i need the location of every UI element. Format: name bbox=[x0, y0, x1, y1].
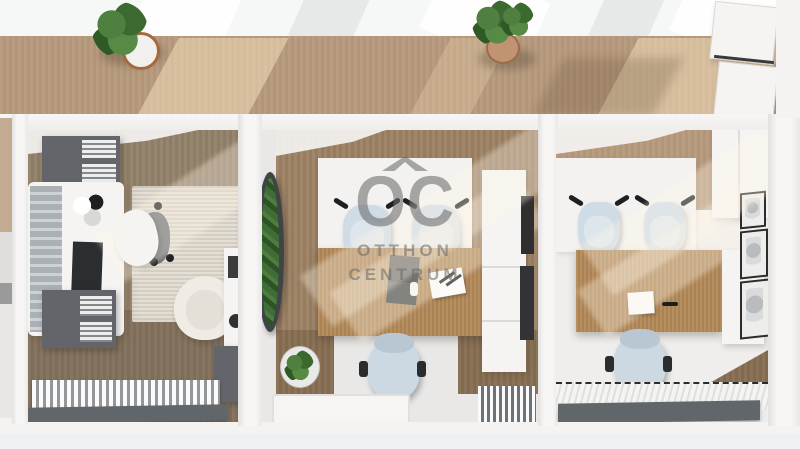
office-floorplan-render: OC OTTHON CENTRUM bbox=[0, 0, 800, 449]
round-potted-plant bbox=[280, 346, 318, 386]
paper-sheet bbox=[627, 291, 654, 315]
shelf-unit-bottom bbox=[42, 290, 116, 348]
wall-frame-3 bbox=[740, 278, 768, 339]
room-right-office bbox=[556, 130, 768, 422]
right-edge-wall bbox=[776, 0, 800, 118]
chair-wheel bbox=[154, 202, 162, 210]
plant-leaves bbox=[284, 350, 314, 382]
plant-leaves bbox=[92, 2, 148, 58]
wall-frame-1 bbox=[740, 191, 766, 230]
armchair-seat bbox=[186, 290, 224, 330]
wall-frame-small bbox=[521, 196, 534, 254]
small-bottle bbox=[410, 282, 418, 296]
planter-greens bbox=[262, 178, 279, 326]
foreground-strip bbox=[0, 434, 800, 449]
room-middle-office bbox=[262, 130, 538, 422]
binders bbox=[80, 322, 112, 342]
guest-chair-2 bbox=[644, 202, 686, 254]
desk-items bbox=[72, 192, 106, 226]
floor-slab-edge bbox=[28, 404, 228, 422]
laptop bbox=[386, 255, 420, 305]
main-desk bbox=[318, 248, 494, 336]
chair-seat bbox=[650, 216, 679, 248]
office-chair-with-throw bbox=[114, 202, 172, 272]
white-floor-mat bbox=[272, 394, 410, 422]
wall-frame-2 bbox=[740, 229, 768, 280]
binders bbox=[80, 296, 112, 316]
potted-plant-left bbox=[92, 2, 158, 66]
outer-left-wall bbox=[12, 114, 28, 424]
frame-art bbox=[745, 197, 760, 222]
outer-right-wall bbox=[768, 114, 800, 426]
wall-frame-small bbox=[520, 266, 534, 340]
guest-chair-1 bbox=[578, 202, 620, 254]
striped-mat bbox=[478, 386, 536, 422]
floor-slab-edge bbox=[558, 400, 760, 422]
binders bbox=[82, 140, 116, 158]
room-left-office bbox=[28, 130, 240, 422]
divider-wall-middle-right bbox=[538, 114, 558, 426]
desk-office-chair bbox=[368, 340, 420, 400]
frame-art bbox=[746, 236, 762, 269]
main-desk bbox=[576, 250, 722, 332]
divider-wall-left-middle bbox=[238, 114, 262, 426]
paper-stack bbox=[428, 267, 466, 299]
chair-seat bbox=[584, 216, 613, 248]
potted-plant-center bbox=[470, 0, 534, 64]
pen bbox=[662, 302, 678, 306]
shelf-unit-top bbox=[42, 136, 120, 186]
frame-art bbox=[746, 288, 763, 329]
plant-leaves bbox=[500, 2, 534, 38]
binders bbox=[82, 164, 116, 182]
glass-cabinet-bottom bbox=[713, 61, 778, 121]
